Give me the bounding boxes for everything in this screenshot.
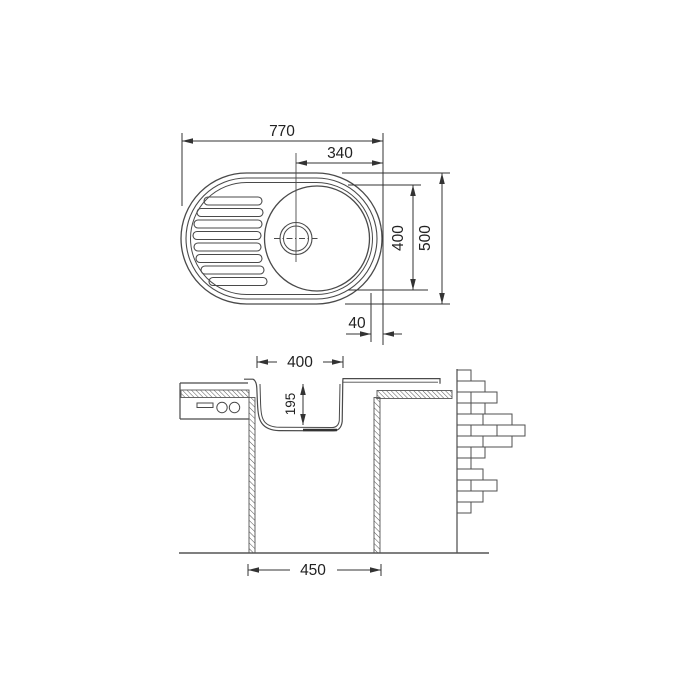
drain <box>274 153 318 262</box>
countertop-left <box>180 383 249 419</box>
drawer-front <box>197 402 240 412</box>
countertop-right <box>377 391 452 399</box>
dim-label-500: 500 <box>417 225 434 251</box>
drawing-canvas: 770 340 400 500 <box>0 0 700 700</box>
dim-bowl-depth: 195 <box>283 384 306 425</box>
dim-bowl-offset: 340 <box>296 145 383 166</box>
dim-base-width: 450 <box>248 562 381 579</box>
drawer-knob <box>229 402 239 412</box>
dim-label-195: 195 <box>283 393 298 416</box>
dim-label-340: 340 <box>327 145 353 162</box>
dim-label-450: 450 <box>300 562 326 579</box>
drawer-handle <box>197 403 213 408</box>
dim-label-770: 770 <box>269 123 295 140</box>
dim-label-400-top: 400 <box>390 225 407 251</box>
sink-bowl-section <box>244 379 440 431</box>
sink-outline <box>181 173 382 304</box>
drawer-knob <box>217 402 227 412</box>
dim-edge-offset: 40 <box>346 293 402 342</box>
section-view: 400 195 450 <box>179 354 525 579</box>
dim-label-40: 40 <box>348 315 366 332</box>
cabinet-walls <box>249 391 452 554</box>
dim-section-bowl-width: 400 <box>257 354 343 371</box>
dim-label-section-400: 400 <box>287 354 313 371</box>
drainboard-ribs <box>193 197 267 286</box>
sink-technical-drawing: 770 340 400 500 <box>0 0 700 700</box>
top-view: 770 340 400 500 <box>181 123 450 345</box>
brick-wall <box>457 370 525 513</box>
